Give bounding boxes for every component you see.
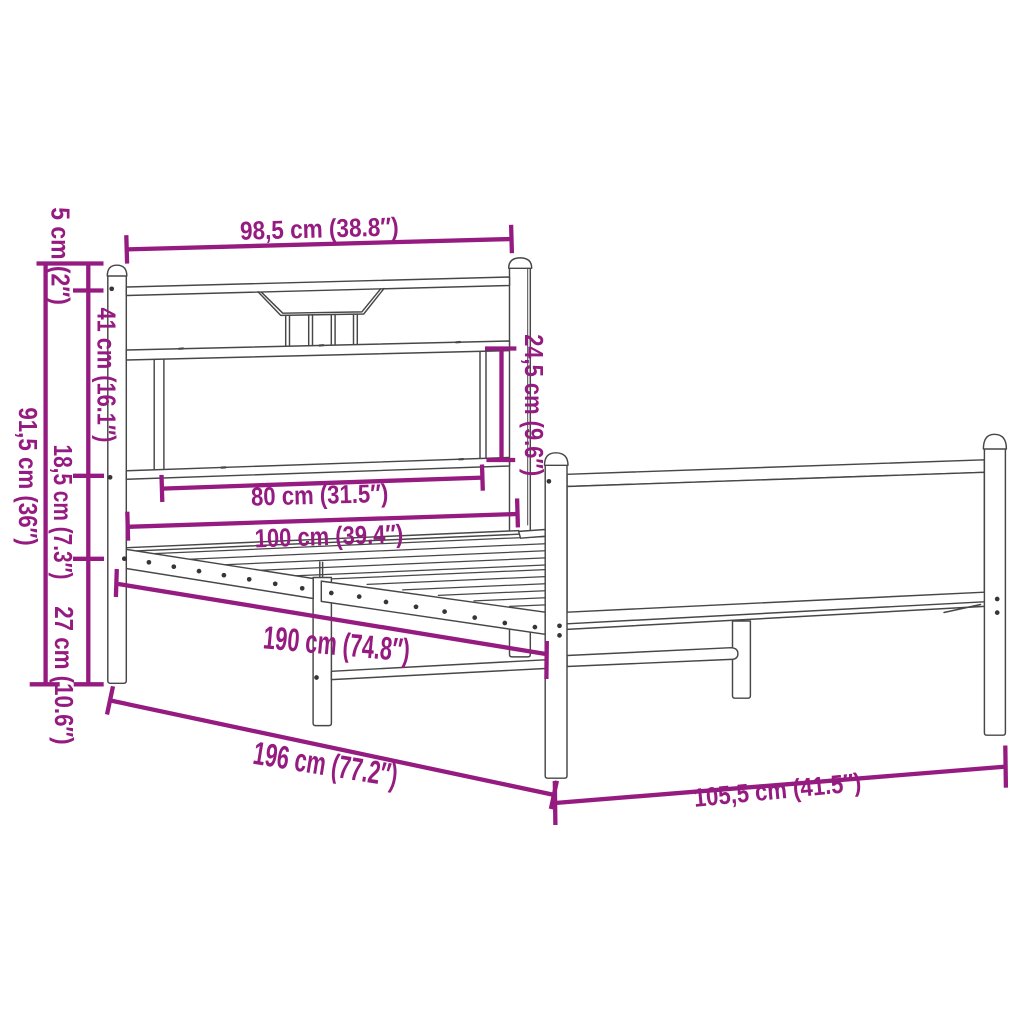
svg-text:18,5 cm (7.3″): 18,5 cm (7.3″): [48, 445, 78, 580]
svg-text:24,5 cm (9.6″): 24,5 cm (9.6″): [519, 334, 549, 476]
svg-text:41 cm (16.1″): 41 cm (16.1″): [91, 308, 121, 443]
svg-text:27 cm (10.6″): 27 cm (10.6″): [49, 606, 79, 744]
svg-text:80 cm (31.5″): 80 cm (31.5″): [251, 478, 389, 512]
svg-text:5 cm (2″): 5 cm (2″): [46, 207, 76, 305]
svg-text:91,5 cm (36″): 91,5 cm (36″): [13, 407, 43, 545]
svg-text:98,5 cm (38.8″): 98,5 cm (38.8″): [240, 211, 399, 245]
svg-text:100 cm (39.4″): 100 cm (39.4″): [254, 518, 403, 553]
